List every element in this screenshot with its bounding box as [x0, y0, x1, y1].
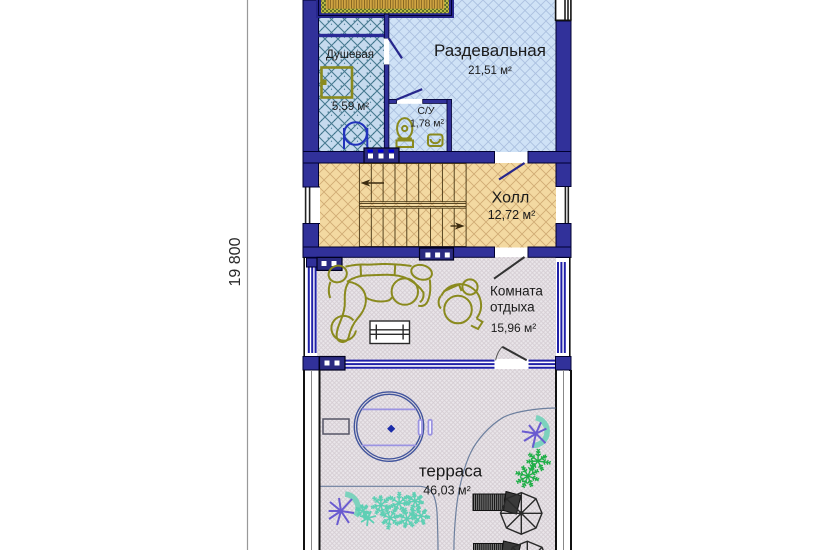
svg-text:12,72 м²: 12,72 м² [488, 208, 536, 222]
svg-text:Комната: Комната [490, 283, 543, 298]
svg-text:Раздевальная: Раздевальная [434, 41, 546, 60]
svg-text:Холл: Холл [492, 190, 530, 207]
svg-text:отдыха: отдыха [490, 300, 535, 315]
svg-text:терраса: терраса [419, 462, 483, 481]
svg-text:21,51 м²: 21,51 м² [468, 65, 512, 77]
svg-text:15,96 м²: 15,96 м² [491, 321, 537, 335]
svg-text:19 800: 19 800 [227, 237, 244, 286]
svg-text:1,78 м²: 1,78 м² [410, 118, 445, 130]
svg-text:Душевая: Душевая [326, 49, 374, 61]
svg-text:5,59 м²: 5,59 м² [332, 101, 369, 113]
svg-text:С/У: С/У [417, 105, 435, 117]
svg-text:46,03 м²: 46,03 м² [423, 484, 471, 498]
